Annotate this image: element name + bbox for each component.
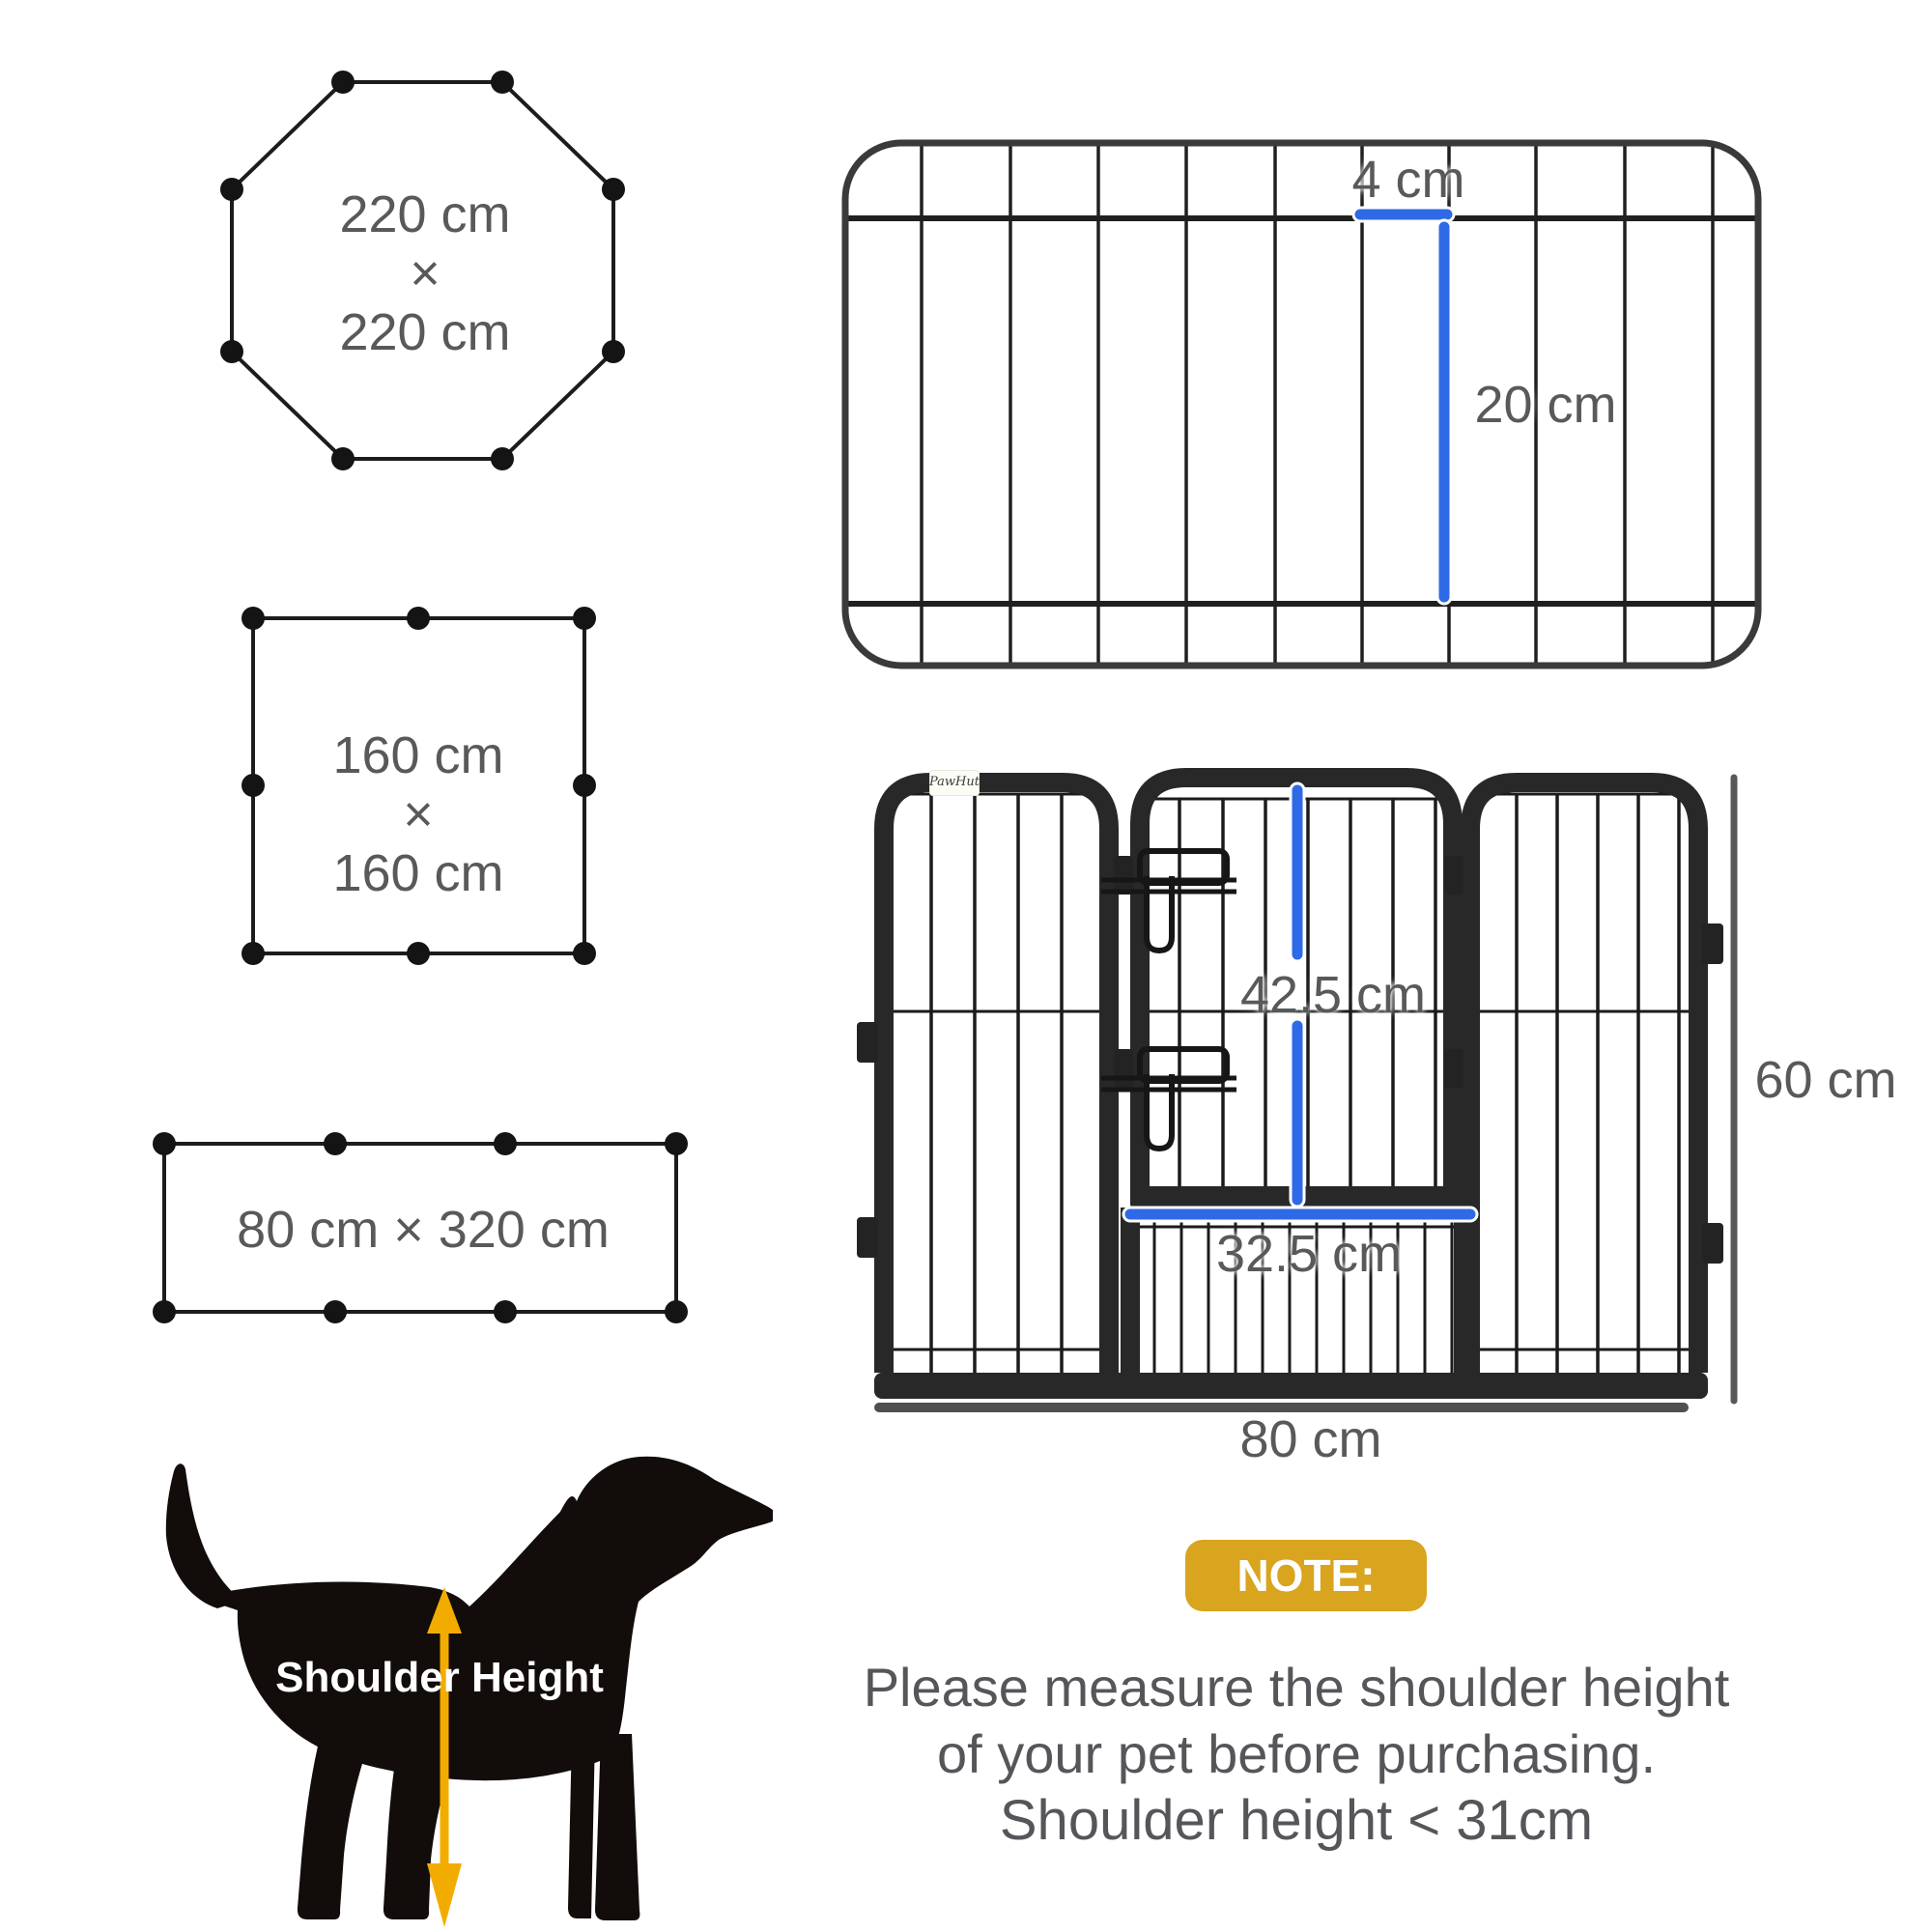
square-size-line1: 160 cm [225,726,611,785]
note-text: Please measure the shoulder height of yo… [620,1654,1932,1854]
product-infographic: 220 cm × 220 cm 160 cm × 160 cm [0,0,1932,1932]
square-size-times: × [225,785,611,844]
panel-width-label: 80 cm [1214,1410,1407,1469]
gate-width-label: 32.5 cm [1212,1225,1406,1284]
shoulder-height-label: Shoulder Height [198,1654,681,1702]
square-size-line2: 160 cm [225,844,611,903]
octagon-size-line1: 220 cm [232,185,618,244]
bar-length-label: 20 cm [1449,376,1642,435]
fence-right-panel [1470,782,1698,1373]
octagon-size-label: 220 cm × 220 cm [232,185,618,362]
dog-tail [166,1463,241,1608]
note-line3: Shoulder height < 31cm [620,1787,1932,1854]
fence-left-panel [884,782,1109,1373]
panel-height-label: 60 cm [1729,1051,1922,1110]
gate-height-label: 42.5 cm [1236,966,1430,1025]
note-badge: NOTE: [1185,1540,1427,1611]
octagon-size-times: × [232,244,618,303]
rectangle-size-label: 80 cm × 320 cm [182,1201,665,1260]
octagon-size-line2: 220 cm [232,303,618,362]
square-size-label: 160 cm × 160 cm [225,726,611,903]
brand-label: PawHut [929,770,980,796]
fence-bottom-bar [874,1373,1708,1399]
bar-gap-label: 4 cm [1312,151,1505,210]
fence-front-diagram [821,763,1748,1430]
note-line1: Please measure the shoulder height [620,1654,1932,1720]
note-line2: of your pet before purchasing. [620,1720,1932,1787]
